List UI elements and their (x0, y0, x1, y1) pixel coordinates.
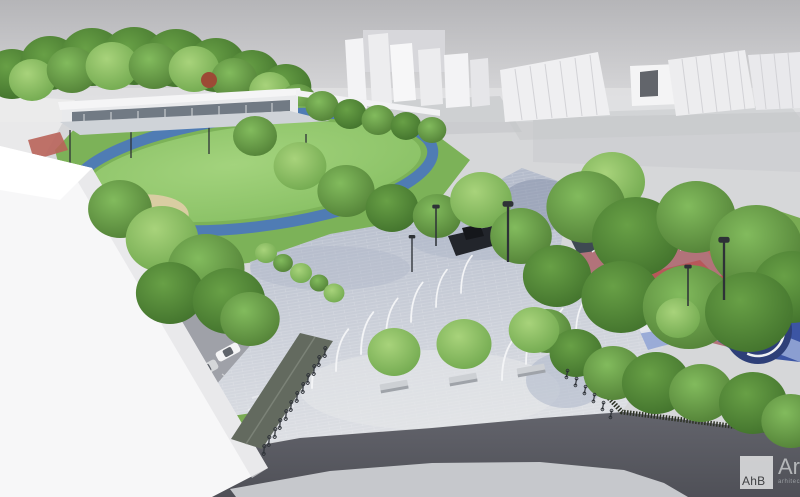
shrub (273, 254, 293, 272)
scene-render (0, 0, 800, 497)
logo-subtitle: arhitectura ur (778, 478, 800, 486)
tree (418, 117, 447, 143)
tree (220, 292, 279, 346)
park-masterplan-render: AhB Arhi arhitectura ur (0, 0, 800, 497)
logo-initials: AhB (742, 475, 765, 487)
tree (391, 112, 422, 140)
shrub (290, 263, 312, 283)
building-notch (640, 70, 658, 97)
massing-slab (418, 48, 443, 106)
logo-studio-name: Arhi (778, 456, 800, 478)
massing-slab (368, 33, 392, 105)
massing-slab (390, 43, 416, 102)
tree (306, 91, 339, 121)
logo-badge: AhB (740, 456, 773, 489)
plaza-tree (368, 328, 421, 376)
plaza-tree (509, 307, 560, 353)
red-tree (201, 72, 217, 88)
tree (334, 99, 367, 129)
logo-text: Arhi arhitectura ur (778, 456, 800, 486)
plaza-highlight (300, 350, 560, 430)
plaza-tree (656, 298, 700, 338)
tree (523, 245, 591, 307)
tree (233, 116, 277, 156)
massing-slab (444, 53, 470, 108)
plaza-tree (437, 319, 492, 369)
tree (705, 272, 793, 352)
tree (366, 184, 419, 232)
tree (362, 105, 395, 135)
massing-slab (470, 58, 490, 107)
tree (274, 142, 327, 190)
watermark-logo: AhB Arhi arhitectura ur (740, 456, 800, 489)
shrub (324, 284, 345, 303)
